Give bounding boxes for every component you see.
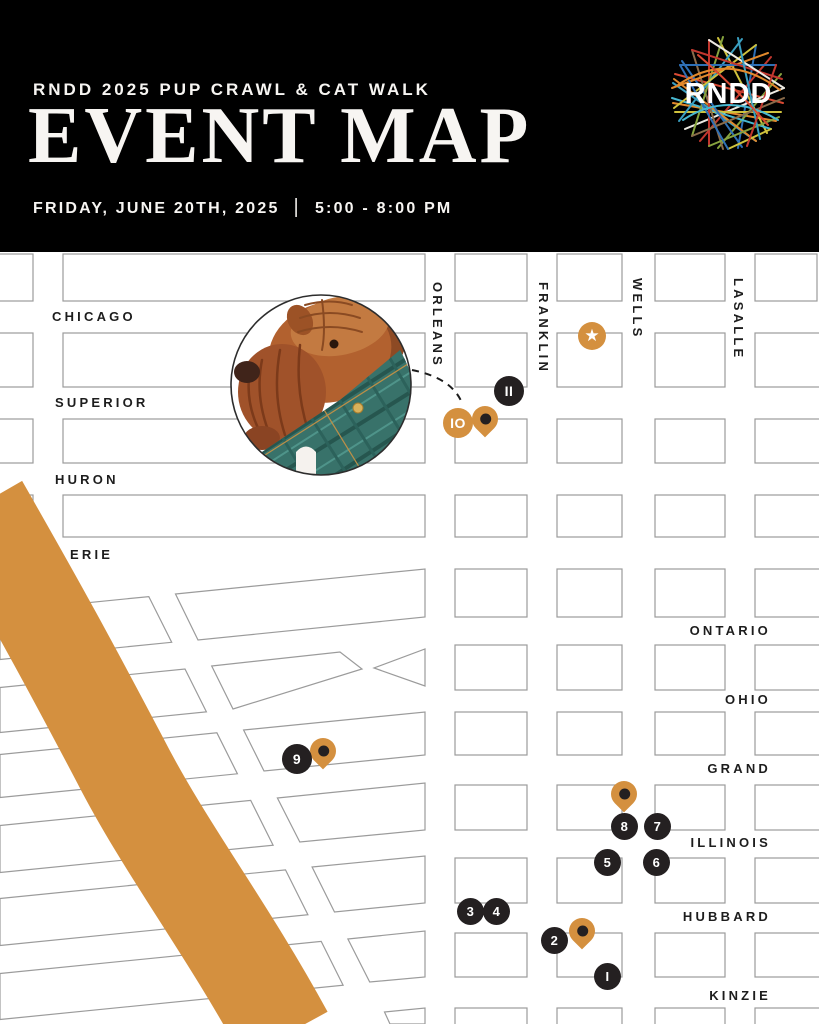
featured-stop-marker: ★ [578,322,606,350]
stop-marker-11: II [494,376,524,406]
event-map: CHICAGO SUPERIOR HURON ERIE ONTARIO OHIO… [0,252,819,1024]
event-schedule: FRIDAY, JUNE 20TH, 2025 | 5:00 - 8:00 PM [33,197,452,220]
stop-marker-5: 5 [594,849,621,876]
street-label-wells: WELLS [630,278,645,340]
stop-marker-3: 3 [457,898,484,925]
stop-marker-6: 6 [643,849,670,876]
star-icon: ★ [584,327,599,344]
stop-marker-4: 4 [483,898,510,925]
street-label-lasalle: LASALLE [731,278,746,360]
street-label-erie: ERIE [70,547,113,562]
stop-marker-7: 7 [644,813,671,840]
street-label-huron: HURON [55,472,119,487]
street-label-superior: SUPERIOR [55,395,149,410]
stop-marker-8: 8 [611,813,638,840]
stop-marker-10: IO [443,408,473,438]
stop-marker-9: 9 [282,744,312,774]
event-date: FRIDAY, JUNE 20TH, 2025 [33,200,280,218]
poster-title: EVENT MAP [28,94,531,178]
header: RNDD 2025 PUP CRAWL & CAT WALK EVENT MAP… [0,0,819,252]
street-label-orleans: ORLEANS [430,282,445,368]
event-map-poster: RNDD 2025 PUP CRAWL & CAT WALK EVENT MAP… [0,0,819,1024]
event-time: 5:00 - 8:00 PM [315,200,453,218]
street-label-ontario: ONTARIO [591,623,771,638]
rndd-logo: RNDD [668,30,789,162]
street-label-grand: GRAND [591,761,771,776]
rndd-logo-text: RNDD [668,78,789,111]
schedule-divider: | [294,196,301,219]
stop-marker-2: 2 [541,927,568,954]
street-label-kinzie: KINZIE [591,988,771,1003]
stop-marker-1: I [594,963,621,990]
dog-photo [231,287,432,500]
street-label-hubbard: HUBBARD [591,909,771,924]
street-label-franklin: FRANKLIN [536,282,551,374]
street-label-ohio: OHIO [591,692,771,707]
street-label-chicago: CHICAGO [52,309,136,324]
